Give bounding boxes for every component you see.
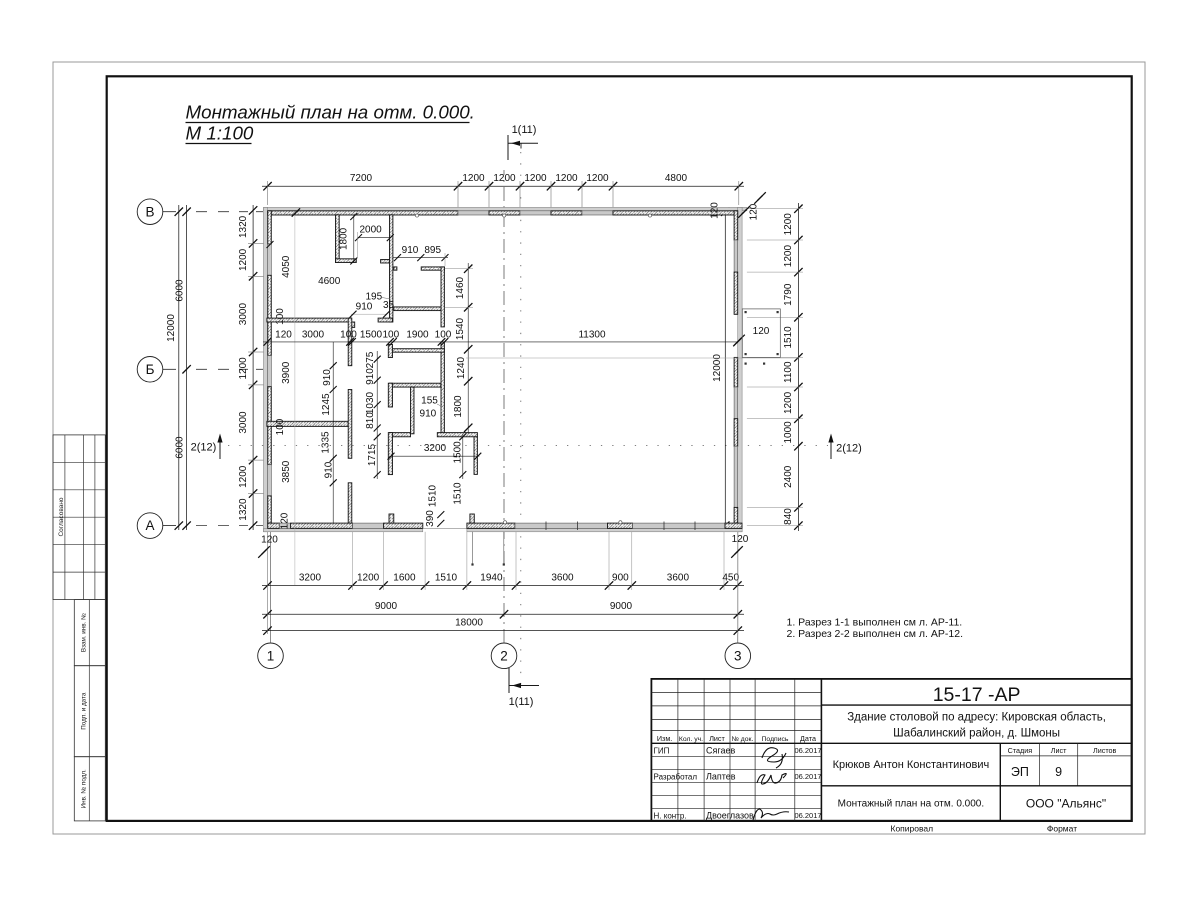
svg-text:Сягаев: Сягаев <box>706 746 735 756</box>
svg-text:4800: 4800 <box>665 173 688 184</box>
svg-text:Здание столовой по адресу: Кир: Здание столовой по адресу: Кировская обл… <box>847 712 1106 724</box>
svg-text:Инв. № подл.: Инв. № подл. <box>80 769 87 808</box>
svg-text:2. Разрез 2-2 выполнен см л. А: 2. Разрез 2-2 выполнен см л. АР-12. <box>787 628 964 640</box>
svg-text:1600: 1600 <box>393 572 416 583</box>
svg-text:Монтажный план на отм. 0.000.: Монтажный план на отм. 0.000. <box>186 102 475 123</box>
svg-text:06.2017: 06.2017 <box>794 746 821 755</box>
svg-text:1800: 1800 <box>339 227 350 250</box>
svg-text:4600: 4600 <box>318 276 341 287</box>
svg-text:1900: 1900 <box>406 330 429 341</box>
svg-text:1200: 1200 <box>238 248 249 271</box>
svg-text:ЭП: ЭП <box>1011 765 1029 779</box>
svg-text:35: 35 <box>383 300 395 311</box>
svg-text:910: 910 <box>420 409 437 420</box>
svg-text:Монтажный план на отм. 0.000.: Монтажный план на отм. 0.000. <box>838 799 984 810</box>
svg-text:120: 120 <box>710 202 721 219</box>
svg-text:120: 120 <box>732 534 749 545</box>
svg-text:1: 1 <box>267 648 275 663</box>
svg-text:18000: 18000 <box>455 617 483 628</box>
svg-text:910: 910 <box>322 369 333 386</box>
svg-text:Кол. уч.: Кол. уч. <box>679 736 703 743</box>
svg-text:3600: 3600 <box>667 572 690 583</box>
svg-text:1000: 1000 <box>783 421 794 444</box>
svg-text:100: 100 <box>340 330 357 341</box>
svg-text:1320: 1320 <box>238 215 249 238</box>
svg-text:910: 910 <box>356 302 373 313</box>
svg-text:4050: 4050 <box>281 255 292 278</box>
svg-text:Лаптев: Лаптев <box>706 772 736 782</box>
svg-text:120: 120 <box>749 203 760 220</box>
svg-text:Листов: Листов <box>1093 746 1117 755</box>
svg-text:1715: 1715 <box>367 443 378 466</box>
svg-text:ООО "Альянс": ООО "Альянс" <box>1026 797 1106 811</box>
svg-text:1200: 1200 <box>238 465 249 488</box>
svg-text:910: 910 <box>365 368 376 385</box>
svg-text:1510: 1510 <box>428 484 439 507</box>
svg-text:810: 810 <box>365 412 376 429</box>
svg-text:1240: 1240 <box>456 356 467 379</box>
svg-text:1320: 1320 <box>238 498 249 521</box>
svg-text:3000: 3000 <box>238 411 249 434</box>
svg-text:390: 390 <box>425 510 436 527</box>
svg-text:3200: 3200 <box>424 443 447 454</box>
svg-text:910: 910 <box>324 461 335 478</box>
svg-text:1030: 1030 <box>365 391 376 414</box>
svg-text:1510: 1510 <box>435 572 458 583</box>
svg-text:2000: 2000 <box>359 224 382 235</box>
svg-text:155: 155 <box>421 396 438 407</box>
svg-text:895: 895 <box>424 245 441 256</box>
svg-text:1(11): 1(11) <box>512 124 537 136</box>
svg-text:120: 120 <box>280 512 291 529</box>
svg-text:120: 120 <box>753 326 770 337</box>
svg-text:9000: 9000 <box>610 601 633 612</box>
svg-text:1200: 1200 <box>586 173 609 184</box>
svg-text:1(11): 1(11) <box>509 696 534 708</box>
svg-text:1200: 1200 <box>555 173 578 184</box>
svg-text:1460: 1460 <box>455 276 466 299</box>
svg-text:3600: 3600 <box>551 572 574 583</box>
svg-text:9: 9 <box>1055 765 1062 779</box>
svg-text:Подпись: Подпись <box>762 736 789 743</box>
svg-text:1940: 1940 <box>480 572 503 583</box>
svg-text:7200: 7200 <box>350 173 373 184</box>
svg-text:Н. контр.: Н. контр. <box>654 812 687 821</box>
svg-text:2: 2 <box>500 648 508 663</box>
svg-text:1200: 1200 <box>462 173 485 184</box>
svg-text:2(12): 2(12) <box>191 442 217 454</box>
svg-text:6000: 6000 <box>174 436 185 459</box>
svg-text:275: 275 <box>365 351 376 368</box>
svg-text:Подп. и дата: Подп. и дата <box>80 692 87 730</box>
svg-text:1200: 1200 <box>238 357 249 380</box>
svg-text:3900: 3900 <box>281 361 292 384</box>
svg-text:3200: 3200 <box>299 572 322 583</box>
svg-text:Изм.: Изм. <box>657 734 672 743</box>
svg-text:450: 450 <box>722 572 739 583</box>
svg-text:100: 100 <box>275 308 286 325</box>
svg-text:Шабалинский район, д. Шмоны: Шабалинский район, д. Шмоны <box>893 728 1060 740</box>
svg-text:Лист: Лист <box>1051 746 1067 755</box>
svg-text:3000: 3000 <box>302 330 325 341</box>
svg-text:06.2017: 06.2017 <box>794 811 821 820</box>
svg-text:1800: 1800 <box>453 395 464 418</box>
svg-text:1540: 1540 <box>455 317 466 340</box>
svg-text:1200: 1200 <box>783 391 794 414</box>
svg-text:1245: 1245 <box>321 393 332 416</box>
svg-text:120: 120 <box>275 330 292 341</box>
svg-text:1500: 1500 <box>453 441 464 464</box>
svg-text:3000: 3000 <box>238 303 249 326</box>
svg-text:840: 840 <box>783 508 794 525</box>
svg-text:Б: Б <box>146 362 155 377</box>
svg-text:1200: 1200 <box>783 213 794 236</box>
svg-text:Дата: Дата <box>800 734 816 743</box>
svg-text:3850: 3850 <box>281 460 292 483</box>
svg-text:1200: 1200 <box>493 173 516 184</box>
svg-text:В: В <box>145 204 154 219</box>
svg-text:11300: 11300 <box>578 330 606 341</box>
svg-text:Двоеглазов: Двоеглазов <box>706 811 754 821</box>
svg-text:900: 900 <box>612 572 629 583</box>
svg-text:1200: 1200 <box>783 245 794 268</box>
svg-text:Копировал: Копировал <box>891 824 934 834</box>
svg-text:Лист: Лист <box>709 734 725 743</box>
svg-text:А: А <box>145 518 154 533</box>
svg-text:№ док.: № док. <box>732 736 754 743</box>
svg-text:1510: 1510 <box>453 482 464 505</box>
svg-text:Стадия: Стадия <box>1008 746 1033 755</box>
svg-text:Крюков Антон Константинович: Крюков Антон Константинович <box>833 759 990 771</box>
svg-text:М 1:100: М 1:100 <box>186 123 254 144</box>
svg-text:1335: 1335 <box>320 431 331 454</box>
svg-text:1200: 1200 <box>524 173 547 184</box>
svg-text:1. Разрез 1-1 выполнен см л. А: 1. Разрез 1-1 выполнен см л. АР-11. <box>787 617 963 629</box>
svg-text:2400: 2400 <box>783 465 794 488</box>
svg-text:06.2017: 06.2017 <box>794 772 821 781</box>
svg-text:15-17 -АР: 15-17 -АР <box>933 684 1021 706</box>
svg-text:1100: 1100 <box>783 361 794 383</box>
svg-text:100: 100 <box>382 330 399 341</box>
svg-text:100: 100 <box>275 418 286 435</box>
svg-text:1200: 1200 <box>357 572 380 583</box>
svg-text:1500: 1500 <box>360 330 383 341</box>
svg-text:Взам. инв. №: Взам. инв. № <box>80 613 87 652</box>
svg-text:Согласовано: Согласовано <box>58 497 65 536</box>
svg-text:1790: 1790 <box>783 283 794 306</box>
svg-text:Разработал: Разработал <box>654 773 698 782</box>
svg-text:2(12): 2(12) <box>836 443 862 455</box>
svg-text:Формат: Формат <box>1047 824 1077 834</box>
svg-text:120: 120 <box>261 535 278 546</box>
svg-text:ГИП: ГИП <box>654 747 670 756</box>
svg-text:9000: 9000 <box>375 601 398 612</box>
svg-text:12000: 12000 <box>166 314 177 342</box>
svg-text:100: 100 <box>435 330 452 341</box>
svg-text:910: 910 <box>402 245 419 256</box>
svg-text:3: 3 <box>734 648 742 663</box>
svg-text:6000: 6000 <box>174 279 185 302</box>
svg-text:1510: 1510 <box>783 326 794 349</box>
